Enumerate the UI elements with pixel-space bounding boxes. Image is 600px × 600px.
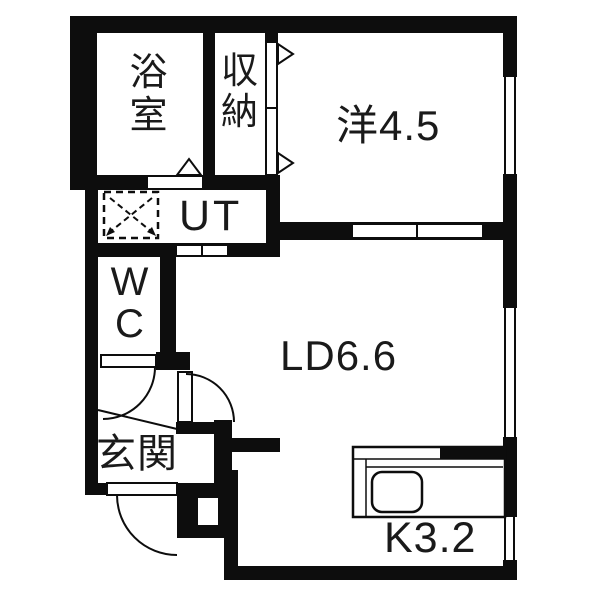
room-label-toilet: W C [92,261,168,345]
room-label-western-room: 洋4.5 [336,102,440,149]
room-label-entrance: 玄関 [96,432,178,477]
kitchen-counter [353,447,505,517]
room-label-living-dining: LD6.6 [280,332,397,379]
room-label-kitchen: K3.2 [384,514,476,562]
wall-ld-k-stub [232,438,280,452]
utility-sliding-door [176,245,228,256]
window-kitchen [503,517,517,560]
wall-storage-right-stub [265,16,278,44]
wall-wc-bottom-stub [156,352,190,370]
wall-left-upper [70,16,97,190]
window-western-room [503,77,517,174]
washing-machine-space-icon [104,192,158,238]
kitchen-sink-icon [372,472,422,512]
arrowhead-icon [147,227,156,236]
counter-wall-bar [440,447,505,459]
window-living-dining [503,308,517,437]
door-swing-triangle-icon [278,153,293,173]
room-label-bathroom: 浴 室 [111,52,187,137]
wall-entrance-left-stub [85,483,107,495]
room-label-storage: 収 納 [202,50,278,133]
wall-step-notch [198,498,218,525]
wall-top [70,16,517,33]
arrowhead-icon [106,227,115,236]
western-ld-sliding-door [352,224,483,238]
entrance-door [107,483,177,555]
floor-plan-drawing [0,0,600,600]
wc-door [101,355,156,419]
ld-door [178,372,234,422]
bathroom-folding-door [147,159,203,189]
door-arc [117,495,177,555]
floor-plan: 浴 室 収 納 洋4.5 UT W C LD6.6 玄関 K3.2 [0,0,600,600]
door-arc [186,374,234,422]
folding-door-triangle-icon [177,159,201,175]
door-arc [103,367,155,419]
room-label-utility: UT [179,192,242,240]
wall-bottom [234,566,503,580]
door-swing-triangle-icon [278,44,293,64]
